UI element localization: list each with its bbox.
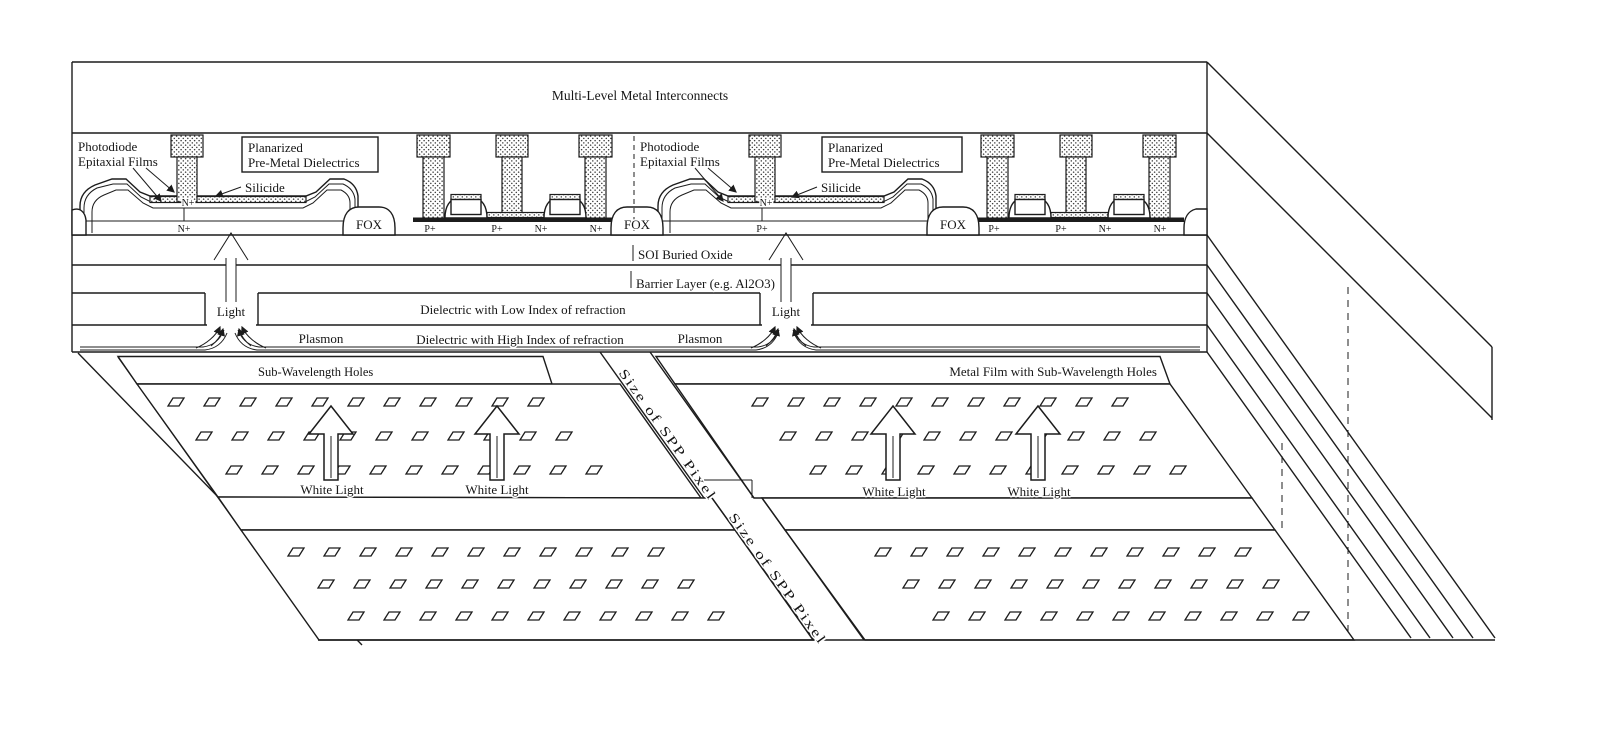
white-light-label: White Light [300,482,364,497]
silicide-label: Silicide [821,180,861,195]
planarized-label-line2: Pre-Metal Dielectrics [248,155,360,170]
doping-label: N+ [1154,224,1167,235]
transistor-region-1 [413,135,620,222]
step-band-2-right [762,498,1275,530]
multi-level-metal-interconnects-label: Multi-Level Metal Interconnects [552,88,728,103]
fox-edge-left [72,209,86,235]
barrier-layer-label: Barrier Layer (e.g. Al2O3) [636,276,775,291]
high-index-dielectric-label: Dielectric with High Index of refraction [416,332,624,347]
sensor-cross-section-figure: Multi-Level Metal Interconnects Photodio… [0,0,1600,746]
soi-buried-oxide-label: SOI Buried Oxide [638,247,733,262]
plasmon-label: Plasmon [299,331,344,346]
doping-label: N+ [760,198,773,209]
transistor-region-2 [977,135,1184,222]
doping-label: P+ [424,224,436,235]
doping-label: N+ [590,224,603,235]
doping-label: P+ [1055,224,1067,235]
planarized-label-line2: Pre-Metal Dielectrics [828,155,940,170]
photodiode-label-line1: Photodiode [640,139,699,154]
planarized-label-line1: Planarized [248,140,303,155]
fox-label: FOX [940,217,967,232]
silicide-label: Silicide [245,180,285,195]
doping-label: N+ [182,198,195,209]
white-light-label: White Light [1007,484,1071,499]
white-light-label: White Light [465,482,529,497]
doping-label: N+ [178,224,191,235]
planarized-label-line1: Planarized [828,140,883,155]
plasmon-label: Plasmon [678,331,723,346]
low-index-dielectric-label: Dielectric with Low Index of refraction [420,302,626,317]
hole-array-plane-1-left [137,384,701,498]
metal-film-label: Metal Film with Sub-Wavelength Holes [949,364,1157,379]
fox-label: FOX [356,217,383,232]
light-label: Light [772,304,801,319]
doping-label: P+ [988,224,1000,235]
diagram-canvas: Multi-Level Metal Interconnects Photodio… [0,0,1600,746]
fox-label: FOX [624,217,651,232]
doping-label: N+ [1099,224,1112,235]
doping-label: P+ [756,224,768,235]
step-band-2-left [218,497,735,530]
sub-wavelength-holes-label: Sub-Wavelength Holes [258,365,373,379]
photodiode-label-line2: Epitaxial Films [640,154,720,169]
doping-label: P+ [491,224,503,235]
photodiode-label-line2: Epitaxial Films [78,154,158,169]
white-light-label: White Light [862,484,926,499]
light-label: Light [217,304,246,319]
doping-label: N+ [535,224,548,235]
photodiode-label-line1: Photodiode [78,139,137,154]
